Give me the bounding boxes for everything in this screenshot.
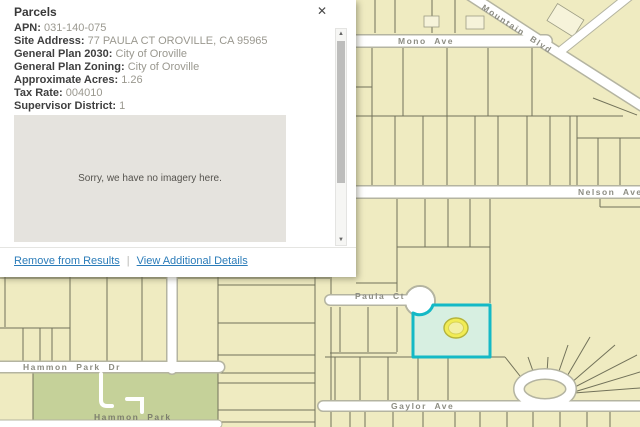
- scrollbar-thumb[interactable]: [337, 41, 345, 183]
- parcel-info-popup: Parcels ✕ APN: 031-140-075 Site Address:…: [0, 0, 356, 277]
- scroll-down-icon[interactable]: ▼: [336, 237, 346, 243]
- remove-from-results-link[interactable]: Remove from Results: [14, 255, 120, 267]
- street-label-nelson: Nelson Ave: [578, 187, 640, 197]
- popup-title: Parcels: [14, 5, 57, 19]
- link-separator: |: [127, 255, 130, 267]
- field-tax-rate: Tax Rate: 004010: [14, 87, 314, 100]
- scroll-up-icon[interactable]: ▲: [336, 31, 346, 37]
- field-general-plan-2030: General Plan 2030: City of Oroville: [14, 48, 314, 61]
- field-apn: APN: 031-140-075: [14, 22, 314, 35]
- field-site-address: Site Address: 77 PAULA CT OROVILLE, CA 9…: [14, 35, 314, 48]
- parcel-marker: [444, 318, 468, 338]
- street-label-gaylor: Gaylor Ave: [391, 401, 454, 411]
- close-icon[interactable]: ✕: [314, 3, 330, 19]
- view-additional-details-link[interactable]: View Additional Details: [137, 255, 248, 267]
- field-approximate-acres: Approximate Acres: 1.26: [14, 74, 314, 87]
- app-window: Mono Ave Mountain Blvd Nelson Ave Paula …: [0, 0, 640, 427]
- parcel-attributes: APN: 031-140-075 Site Address: 77 PAULA …: [14, 22, 314, 113]
- panel-scrollbar[interactable]: ▲ ▼: [335, 28, 347, 246]
- street-label-paula: Paula Ct: [355, 291, 405, 301]
- park-label: Hammon Park: [94, 412, 172, 422]
- field-supervisor-district: Supervisor District: 1: [14, 100, 314, 113]
- no-imagery-message: Sorry, we have no imagery here.: [78, 173, 222, 184]
- popup-footer: Remove from Results|View Additional Deta…: [0, 247, 356, 267]
- street-label-mono: Mono Ave: [398, 36, 454, 46]
- imagery-placeholder-box: Sorry, we have no imagery here.: [14, 115, 286, 242]
- street-label-hammon-park-dr: Hammon Park Dr: [23, 362, 121, 372]
- field-general-plan-zoning: General Plan Zoning: City of Oroville: [14, 61, 314, 74]
